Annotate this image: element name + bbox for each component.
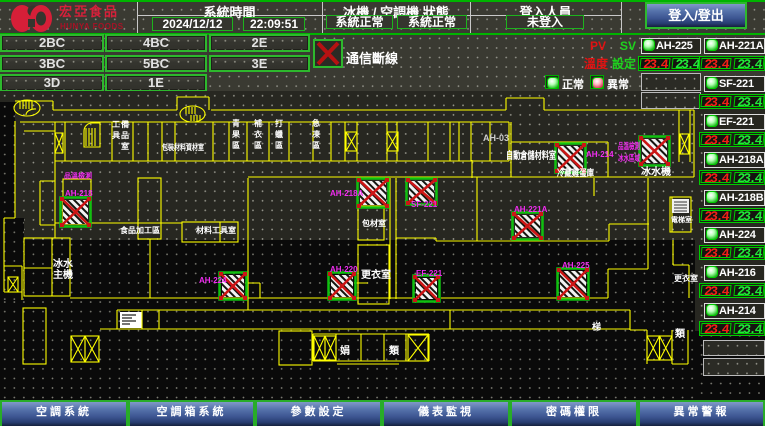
svg-text:梯: 梯 — [592, 321, 601, 332]
svg-text:補衣區: 補衣區 — [253, 118, 262, 150]
svg-text:電梯室: 電梯室 — [671, 215, 692, 224]
svg-text:類: 類 — [674, 327, 686, 340]
svg-text:品溫檢測: 品溫檢測 — [618, 141, 640, 151]
svg-text:AH-224: AH-224 — [199, 276, 227, 285]
svg-text:包裝材料資材室: 包裝材料資材室 — [161, 142, 204, 152]
svg-text:AH-225: AH-225 — [562, 261, 590, 270]
svg-text:更衣室: 更衣室 — [674, 273, 698, 283]
svg-text:打蠟區: 打蠟區 — [275, 118, 283, 150]
svg-text:更衣室: 更衣室 — [361, 268, 391, 281]
svg-text:AH-220: AH-220 — [330, 265, 358, 274]
svg-text:冰水機: 冰水機 — [641, 165, 671, 178]
svg-text:AH-221A: AH-221A — [514, 205, 548, 214]
svg-text:冰水區域: 冰水區域 — [618, 153, 640, 163]
svg-text:包材室: 包材室 — [361, 218, 386, 228]
svg-text:EF-221: EF-221 — [416, 269, 443, 278]
svg-text:AH-218A: AH-218A — [330, 189, 364, 198]
svg-text:AH-214: AH-214 — [586, 150, 614, 159]
svg-text:材料工具室: 材料工具室 — [196, 225, 236, 235]
svg-text:SF-221: SF-221 — [411, 200, 438, 209]
svg-text:冰水: 冰水 — [53, 257, 74, 270]
svg-text:主機: 主機 — [53, 268, 73, 281]
svg-text:AH-03: AH-03 — [483, 133, 509, 143]
svg-text:娟: 娟 — [340, 344, 350, 357]
svg-text:食品加工區: 食品加工區 — [120, 225, 160, 235]
svg-text:自動倉儲材料室: 自動倉儲材料室 — [506, 149, 556, 162]
svg-text:品溫檢測: 品溫檢測 — [64, 171, 92, 180]
svg-text:青果區: 青果區 — [231, 118, 240, 150]
svg-text:AH-218: AH-218 — [65, 189, 93, 198]
svg-text:急凍區: 急凍區 — [312, 118, 321, 150]
svg-text:類: 類 — [388, 344, 400, 357]
svg-text:冷藏雞蛋庫: 冷藏雞蛋庫 — [557, 167, 594, 178]
svg-text:工具: 工具 — [112, 120, 120, 140]
svg-text:備品室: 備品室 — [121, 119, 129, 151]
